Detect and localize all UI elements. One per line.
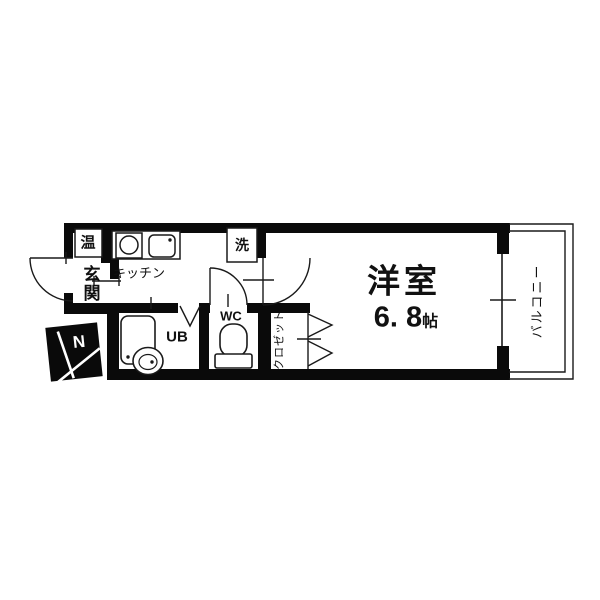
room-size-label: 6. 8帖	[374, 304, 438, 333]
kitchen-label: キッチン	[113, 267, 165, 280]
room-size-unit: 帖	[422, 314, 438, 331]
closet-label: クロゼット	[275, 310, 286, 370]
toilet	[215, 324, 252, 368]
kitchen-sink	[149, 235, 175, 257]
wc-label: WC	[220, 310, 242, 323]
closet-folding-doors	[297, 312, 332, 369]
north-arrow-icon: N	[43, 322, 103, 388]
stove-burner-icon	[120, 236, 138, 254]
window	[490, 254, 516, 346]
laundry-label: 洗	[235, 238, 249, 252]
faucet-dot-icon	[168, 238, 171, 241]
drain-dot-icon	[126, 355, 129, 358]
entrance-label: 玄関	[82, 265, 99, 303]
wc-door-arc	[210, 268, 247, 307]
sink-dot-icon	[150, 360, 153, 363]
main-room-label: 洋室	[367, 265, 441, 298]
north-label: N	[72, 332, 86, 352]
unit-bath-label: UB	[166, 330, 188, 345]
floor-plan: N 温 玄関 キッチン 洗 UB WC クロゼット 洋室 6. 8帖 バルコニー	[0, 0, 600, 600]
kitchen-counter	[112, 231, 180, 259]
room-door-arc	[243, 258, 310, 305]
balcony-label: バルコニー	[531, 264, 544, 339]
room-size-number: 6. 8	[374, 302, 422, 334]
water-heater-label: 温	[80, 236, 95, 251]
